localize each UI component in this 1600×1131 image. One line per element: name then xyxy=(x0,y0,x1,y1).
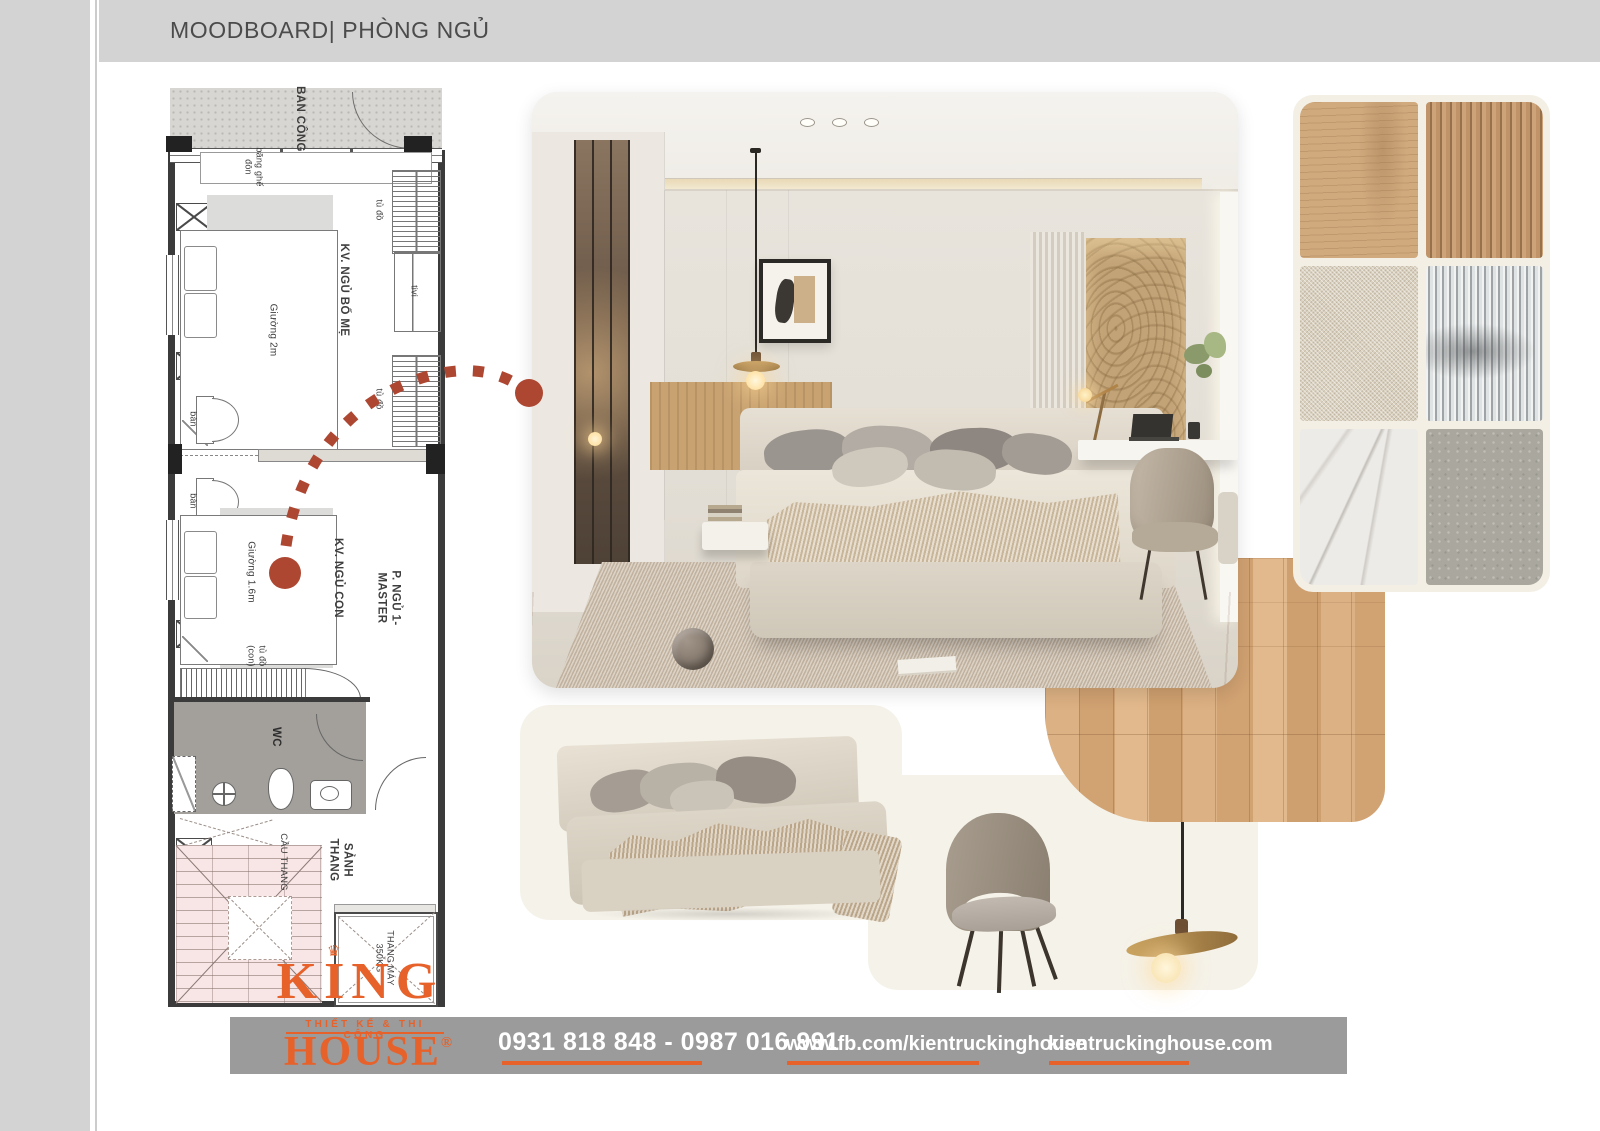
plan-hall-door-arc xyxy=(375,757,426,810)
render-wardrobe-glass xyxy=(574,140,630,564)
render-plant xyxy=(1196,364,1212,378)
footer-website-link[interactable]: kientruckinghouse.com xyxy=(1048,1033,1273,1056)
chair-leg xyxy=(1034,924,1058,980)
plan-curved-wall xyxy=(304,668,361,699)
render-knot-pillow xyxy=(672,628,714,670)
swatch-fluted-glass xyxy=(1426,266,1544,422)
artwork-shape xyxy=(794,276,815,323)
plan-window xyxy=(166,520,179,600)
plan-sink xyxy=(212,782,236,806)
plan-pillow xyxy=(184,576,217,619)
label-wc: WC xyxy=(269,727,283,747)
render-ottoman xyxy=(1218,492,1238,564)
footer-phone-underline xyxy=(502,1061,702,1065)
swatch-light-oak-veneer xyxy=(1300,102,1418,258)
label-stair-hall: SẢNH THANG xyxy=(326,839,355,882)
plan-wardrobe-hatch xyxy=(392,170,441,254)
plan-wall-block xyxy=(426,444,445,474)
plan-corner-block xyxy=(166,136,192,152)
pendant-lamp-bulb xyxy=(1151,953,1181,983)
plan-corner-block xyxy=(404,136,432,152)
swatch-white-marble xyxy=(1300,429,1418,585)
footer-facebook-link[interactable]: www.fb.com/kientruckinghouse xyxy=(786,1033,1086,1056)
render-laptop xyxy=(1131,414,1174,438)
label-tv: tivi xyxy=(408,285,419,297)
chair-leg xyxy=(957,927,975,986)
label-master-room: P. NGỦ 1- MASTER xyxy=(374,570,403,625)
page-title: MOODBOARD| PHÒNG NGỦ xyxy=(170,17,490,44)
label-bed-2m: Giường 2m xyxy=(266,304,279,357)
label-stairs: CẦU THANG xyxy=(277,833,289,891)
bedroom-render-image xyxy=(532,92,1238,688)
render-books xyxy=(708,505,742,521)
footer-facebook-underline xyxy=(787,1061,979,1065)
label-bench: băng ghế đôn xyxy=(242,147,265,186)
render-bed-base xyxy=(750,562,1162,638)
bed-shadow xyxy=(590,907,870,921)
render-pendant-bulb xyxy=(746,371,765,390)
footer-website-underline xyxy=(1049,1061,1189,1065)
material-board xyxy=(1293,95,1550,592)
label-balcony: BAN CÔNG xyxy=(293,86,307,152)
label-wardrobe: tủ đồ xyxy=(373,199,384,220)
plan-toilet xyxy=(268,768,294,810)
render-pen-cup xyxy=(1188,422,1200,439)
chair-leg xyxy=(997,931,1003,993)
label-desk: bàn xyxy=(187,493,198,509)
render-wardrobe-lamp xyxy=(588,432,602,446)
left-divider-line xyxy=(95,0,97,1131)
label-wardrobe: tủ đồ xyxy=(373,388,384,409)
moodboard-page: MOODBOARD| PHÒNG NGỦ BAN CÔNG băng ghế đ… xyxy=(0,0,1600,1131)
label-child-area: KV. NGỦ CON xyxy=(331,538,345,618)
logo-house-text: HOUSE xyxy=(284,1029,441,1075)
render-laptop-base xyxy=(1129,437,1179,441)
plan-pillow xyxy=(184,246,217,291)
left-gray-column xyxy=(0,0,90,1131)
plan-wardrobe-hatch xyxy=(392,355,441,447)
render-pendant-cord xyxy=(755,150,757,362)
logo-brand: KING xyxy=(272,956,448,1008)
label-parents-area: KV. NGỦ BỐ MẸ xyxy=(337,244,351,337)
render-artwork xyxy=(759,259,831,343)
logo-sub-brand: HOUSE® xyxy=(280,1031,456,1073)
plan-pillow xyxy=(184,293,217,338)
render-chair-seat xyxy=(1132,522,1218,552)
plan-dashed-line xyxy=(180,820,273,847)
plan-sliding-door xyxy=(258,449,432,462)
render-plant xyxy=(1204,332,1226,358)
registered-mark: ® xyxy=(441,1035,452,1051)
swatch-wood-slat-panel xyxy=(1426,102,1544,258)
render-pendant-cap xyxy=(750,148,761,153)
bed-base xyxy=(581,850,881,912)
render-desk-lamp-bulb xyxy=(1078,388,1092,402)
swatch-gray-concrete xyxy=(1426,429,1544,585)
plan-wall-block xyxy=(168,444,182,474)
chair-leg xyxy=(1020,927,1036,987)
plan-window xyxy=(166,255,179,335)
spotlight-icon xyxy=(864,118,879,127)
label-desk: bàn xyxy=(187,411,198,427)
plan-shaft xyxy=(172,756,196,812)
plan-bed-fold xyxy=(182,636,208,662)
plan-basin xyxy=(320,786,339,801)
render-nightstand xyxy=(702,522,768,550)
bed-furniture-card xyxy=(520,705,902,920)
label-child-wardrobe: tủ đồ (con) xyxy=(245,645,268,667)
plan-pillow xyxy=(184,531,217,574)
swatch-beige-fabric xyxy=(1300,266,1418,422)
spotlight-icon xyxy=(800,118,815,127)
spotlight-icon xyxy=(832,118,847,127)
plan-wardrobe-strip xyxy=(180,668,306,700)
label-bed-16m: Giường 1.6m xyxy=(244,541,257,603)
